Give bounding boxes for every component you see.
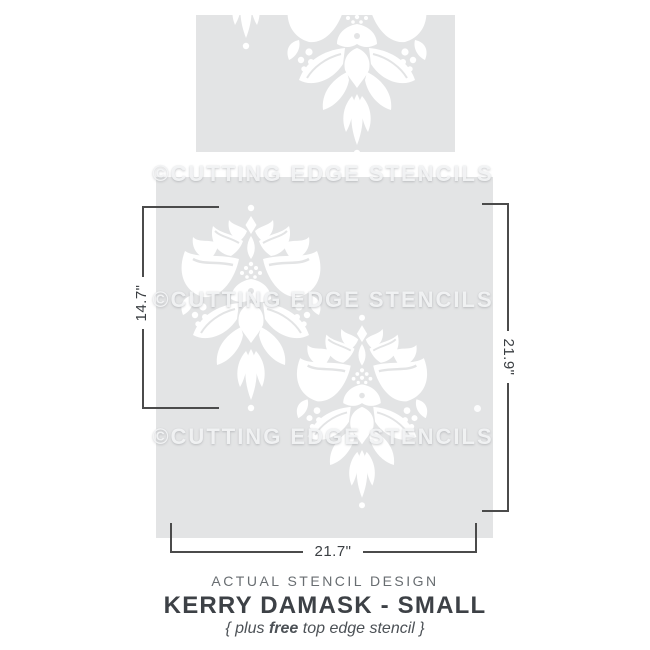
dim-bottom-line-left xyxy=(170,551,303,553)
registration-dot xyxy=(474,405,481,412)
dim-right-top-tick xyxy=(482,203,509,205)
top-edge-stencil-panel xyxy=(196,15,455,152)
stencil-product-image: ©CUTTING EDGE STENCILS ©CUTTING EDGE STE… xyxy=(0,0,650,650)
dim-left-label: 14.7" xyxy=(132,279,152,327)
dim-bottom-label: 21.7" xyxy=(303,542,363,562)
dim-left-line-lower xyxy=(142,329,144,409)
subtitle-bold-word: free xyxy=(269,620,298,637)
damask-motif-corner xyxy=(196,15,326,51)
dim-bottom-line-right xyxy=(363,551,477,553)
dim-right-bottom-tick xyxy=(482,510,509,512)
watermark-row-3: ©CUTTING EDGE STENCILS xyxy=(152,424,493,450)
caption-free-top-edge: { plus free top edge stencil } xyxy=(0,620,650,638)
damask-motif-lower-right xyxy=(287,313,437,510)
dim-right-label: 21.9" xyxy=(498,333,518,381)
dim-bottom-right-riser xyxy=(475,523,477,553)
dim-left-line-upper xyxy=(142,206,144,277)
caption-actual-stencil-design: ACTUAL STENCIL DESIGN xyxy=(0,573,650,589)
dim-left-bottom-tick xyxy=(142,407,219,409)
dim-right-line-lower xyxy=(507,383,509,512)
dim-right-line-upper xyxy=(507,203,509,331)
subtitle-suffix: top edge stencil } xyxy=(298,620,424,637)
watermark-row-2: ©CUTTING EDGE STENCILS xyxy=(152,287,493,313)
subtitle-prefix: { plus xyxy=(225,620,269,637)
dim-left-top-tick xyxy=(142,206,219,208)
watermark-row-1: ©CUTTING EDGE STENCILS xyxy=(152,161,493,187)
product-title: KERRY DAMASK - SMALL xyxy=(0,592,650,620)
main-stencil-panel xyxy=(156,177,493,538)
dim-bottom-left-riser xyxy=(170,523,172,553)
